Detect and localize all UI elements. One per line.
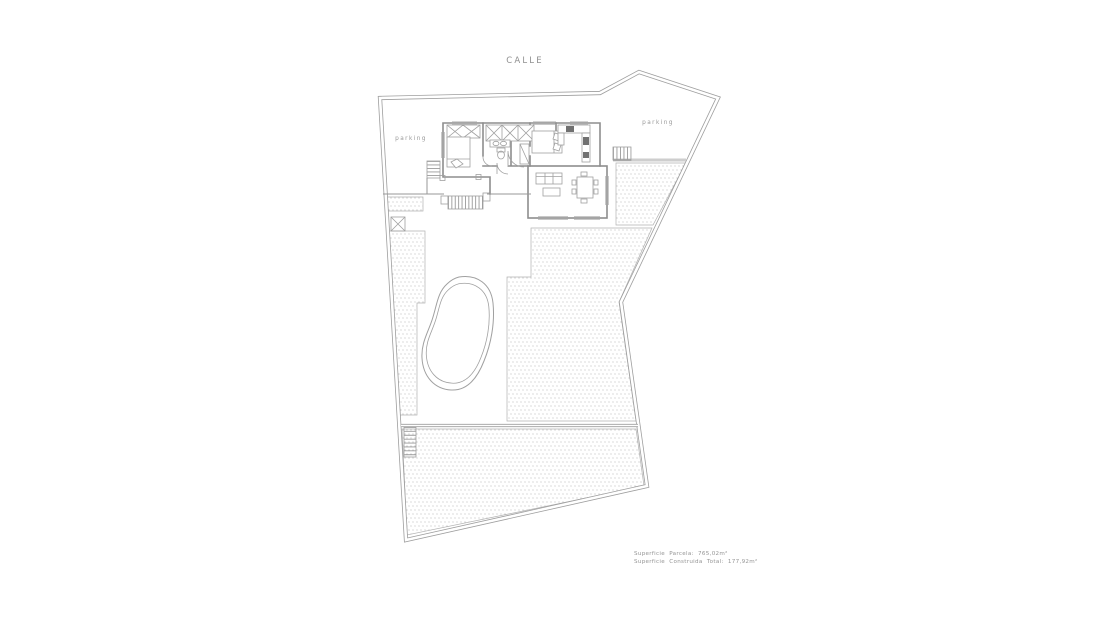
summary-parcel-area: Superficie Parcela: 765,02m² xyxy=(634,550,728,557)
stairs-house-west xyxy=(427,161,440,178)
garden-strip-under-left-parking xyxy=(386,197,423,211)
garden-bottom xyxy=(402,429,644,535)
sofa xyxy=(536,173,562,184)
bedroom2-furniture xyxy=(532,131,562,153)
house-floor-plan xyxy=(427,122,608,220)
summary-built-area: Superficie Construida Total: 177,92m² xyxy=(634,558,758,565)
garden-east-of-house xyxy=(616,163,686,225)
living-room-furniture xyxy=(536,172,598,203)
kitchen-hob xyxy=(583,137,589,145)
street-label: CALLE xyxy=(506,56,544,66)
coffee-table xyxy=(543,188,560,196)
bedroom1-furniture xyxy=(447,125,480,168)
parking-right-label: parking xyxy=(642,120,674,126)
door-swings xyxy=(483,151,524,174)
parking-left-label: parking xyxy=(395,136,427,142)
swimming-pool xyxy=(422,276,494,390)
planter-box xyxy=(391,217,405,231)
plan-labels: CALLE parking parking xyxy=(395,56,674,142)
wardrobe xyxy=(447,125,480,138)
stairs-terrace-long xyxy=(441,193,490,209)
garden-middle-right xyxy=(507,228,652,421)
kitchen xyxy=(558,125,590,162)
kitchen-counter-left xyxy=(558,133,564,145)
stairs-right-parking xyxy=(613,147,631,160)
kitchen-sink xyxy=(566,126,574,132)
area-summary: Superficie Parcela: 765,02m² Superficie … xyxy=(634,550,758,565)
dining-table xyxy=(577,177,593,198)
site-plan-drawing: CALLE parking parking Superficie Parcela… xyxy=(0,0,1110,626)
kitchen-oven xyxy=(583,152,589,158)
site-plan-canvas: CALLE parking parking Superficie Parcela… xyxy=(0,0,1110,626)
